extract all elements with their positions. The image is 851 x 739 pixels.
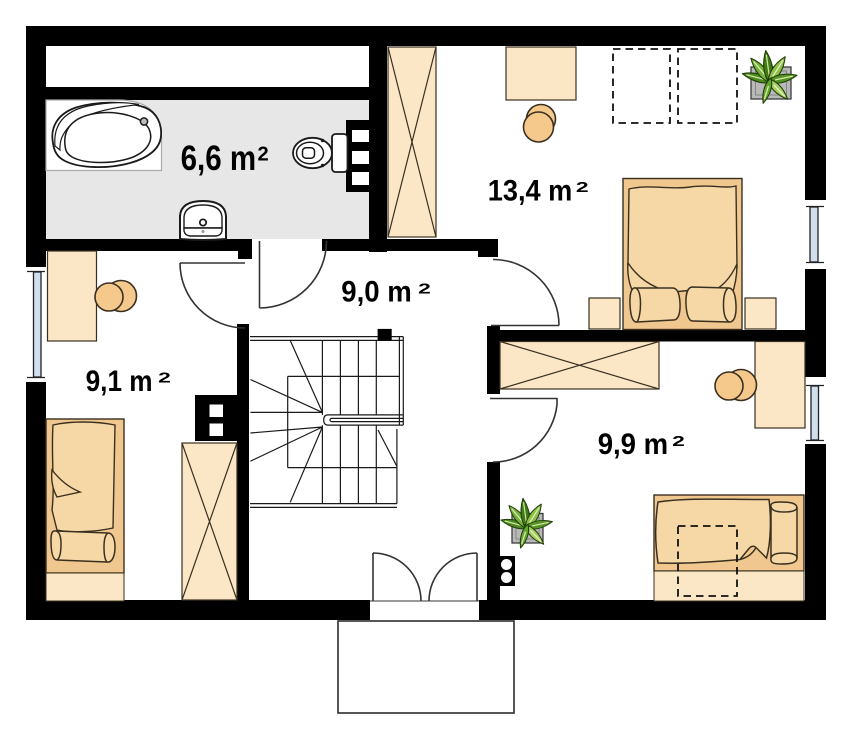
svg-text:13,4 m: 13,4 m	[488, 174, 573, 207]
svg-text:2: 2	[418, 281, 431, 297]
svg-text:9,0 m: 9,0 m	[341, 276, 412, 309]
svg-text:9,9 m: 9,9 m	[598, 428, 669, 461]
svg-text:9,1 m: 9,1 m	[86, 365, 153, 398]
svg-text:2: 2	[258, 143, 269, 165]
svg-text:6,6 m: 6,6 m	[181, 138, 257, 178]
svg-text:2: 2	[158, 371, 171, 387]
svg-text:2: 2	[672, 434, 685, 450]
svg-text:2: 2	[576, 180, 589, 196]
